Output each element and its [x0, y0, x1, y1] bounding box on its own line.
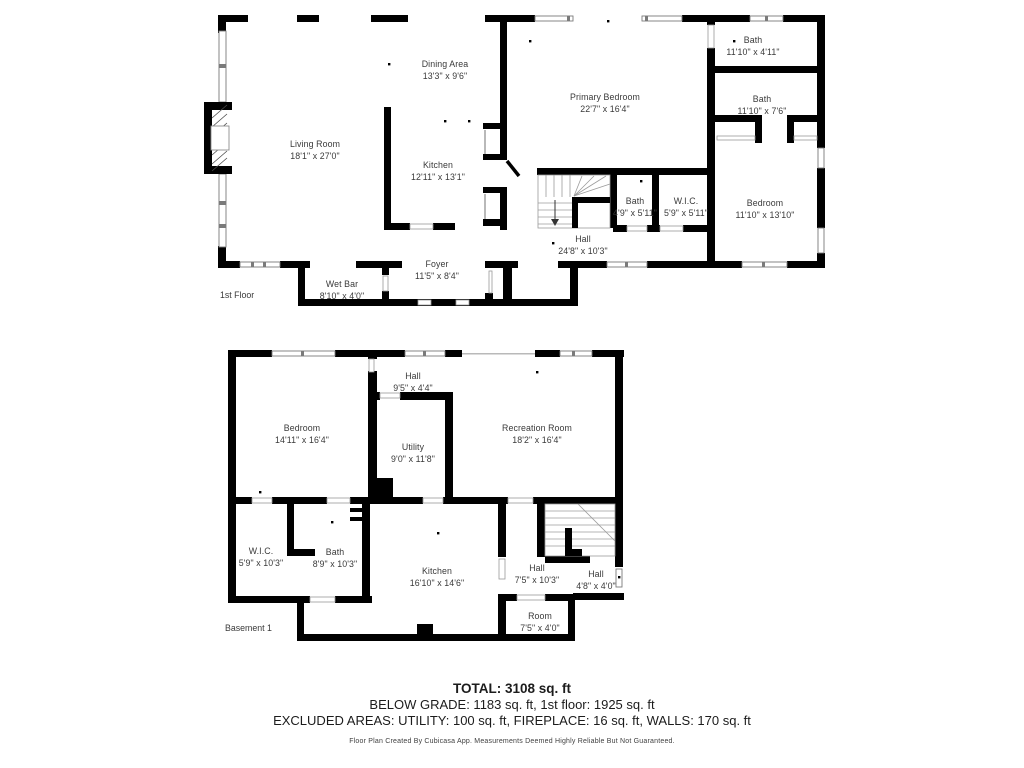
room-dims-bath: 8'9" x 10'3" [313, 559, 358, 569]
room-label-bath-mid: Bath [753, 94, 772, 104]
room-dims-recreation-room: 18'2" x 16'4" [512, 435, 562, 445]
room-dims-room: 7'5" x 4'0" [520, 623, 560, 633]
room-dims-foyer: 11'5" x 8'4" [415, 271, 459, 281]
room-label-bath: Bath [326, 547, 345, 557]
room-dims-hall-bottom: 7'5" x 10'3" [515, 575, 560, 585]
below-grade-text: BELOW GRADE: 1183 sq. ft, 1st floor: 192… [0, 697, 1024, 713]
area-summary: TOTAL: 3108 sq. ft BELOW GRADE: 1183 sq.… [0, 681, 1024, 745]
room-dims-hall: 24'8" x 10'3" [558, 246, 608, 256]
room-dims-wet-bar: 8'10" x 4'0" [320, 291, 365, 301]
room-dims-bedroom: 14'11" x 16'4" [275, 435, 329, 445]
room-label-primary-bedroom: Primary Bedroom [570, 92, 640, 102]
room-dims-kitchen: 12'11" x 13'1" [411, 172, 465, 182]
room-dims-wic: 5'9" x 5'11" [664, 208, 708, 218]
room-label-living-room: Living Room [290, 139, 340, 149]
room-label-hall: Hall [575, 234, 591, 244]
room-label-recreation-room: Recreation Room [502, 423, 572, 433]
room-dims-bath-small: 4'9" x 5'11" [613, 208, 657, 218]
total-area-text: TOTAL: 3108 sq. ft [0, 681, 1024, 697]
room-label-bath-small: Bath [626, 196, 645, 206]
room-dims-utility: 9'0" x 11'8" [391, 454, 435, 464]
door-leaf-icon [507, 161, 519, 176]
basement-plan: Hall 9'5" x 4'4" Bedroom 14'11" x 16'4" … [225, 350, 624, 641]
room-dims-kitchen: 16'10" x 14'6" [410, 578, 465, 588]
fireplace-icon [204, 102, 232, 174]
room-label-hall-top: Hall [405, 371, 421, 381]
room-label-bedroom: Bedroom [284, 423, 320, 433]
room-dims-primary-bedroom: 22'7" x 16'4" [580, 104, 630, 114]
room-label-hall-right: Hall [588, 569, 604, 579]
room-label-kitchen: Kitchen [423, 160, 453, 170]
room-label-bedroom: Bedroom [747, 198, 783, 208]
room-dims-bath-top: 11'10" x 4'11" [726, 47, 779, 57]
first-floor-stairs-icon [538, 175, 610, 228]
room-label-dining-area: Dining Area [422, 59, 469, 69]
room-label-wic: W.I.C. [674, 196, 699, 206]
floor-label-1st-floor: 1st Floor [220, 290, 254, 300]
room-dims-wic: 5'9" x 10'3" [239, 558, 284, 568]
room-dims-bedroom: 11'10" x 13'10" [736, 210, 795, 220]
room-dims-hall-top: 9'5" x 4'4" [393, 383, 433, 393]
room-label-hall-bottom: Hall [529, 563, 545, 573]
room-label-wet-bar: Wet Bar [326, 279, 358, 289]
basement-door-openings [252, 359, 545, 602]
basement-stairs-icon [545, 504, 615, 556]
first-floor-plan: Living Room 18'1" x 27'0" Dining Area 13… [204, 15, 825, 306]
room-label-bath-top: Bath [744, 35, 763, 45]
room-label-utility: Utility [402, 442, 425, 452]
basement-walls [228, 350, 624, 641]
room-dims-hall-right: 4'8" x 4'0" [576, 581, 616, 591]
floorplan-page: Living Room 18'1" x 27'0" Dining Area 13… [0, 0, 1024, 768]
room-dims-dining-area: 13'3" x 9'6" [423, 71, 468, 81]
room-dims-bath-mid: 11'10" x 7'6" [738, 106, 787, 116]
room-dims-living-room: 18'1" x 27'0" [290, 151, 340, 161]
excluded-areas-text: EXCLUDED AREAS: UTILITY: 100 sq. ft, FIR… [0, 713, 1024, 729]
room-label-kitchen: Kitchen [422, 566, 452, 576]
room-label-wic: W.I.C. [249, 546, 274, 556]
floorplan-drawing: Living Room 18'1" x 27'0" Dining Area 13… [0, 0, 1024, 768]
floor-label-basement-1: Basement 1 [225, 623, 272, 633]
disclaimer-text: Floor Plan Created By Cubicasa App. Meas… [0, 738, 1024, 745]
room-label-room: Room [528, 611, 552, 621]
room-label-foyer: Foyer [426, 259, 449, 269]
